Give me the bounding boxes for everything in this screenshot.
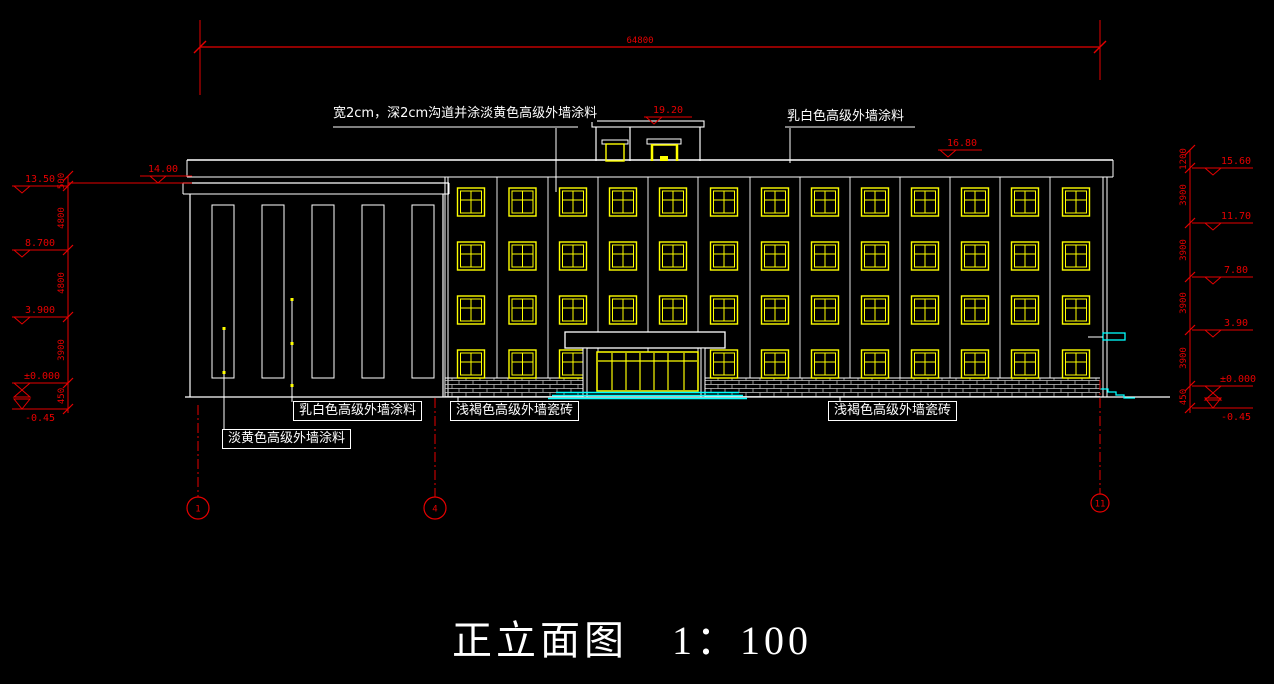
offwhite-paint-label-top: 乳白色高级外墙涂料 [787, 109, 904, 125]
elevation-marker-value: -0.45 [1221, 412, 1251, 423]
elevation-marker-value: 16.80 [947, 138, 977, 149]
offwhite-paint-label-bottom: 乳白色高级外墙涂料 [293, 401, 422, 421]
windows [458, 144, 1090, 378]
tile-label-left: 浅褐色高级外墙瓷砖 [450, 401, 579, 421]
elevation-marker-value: 15.60 [1221, 156, 1251, 167]
chain-dimension-value: 4800 [57, 207, 67, 229]
elevation-marker-value: ±0.000 [24, 371, 60, 382]
elevation-marker-value: 13.50 [25, 174, 55, 185]
chain-dimension-value: 3900 [1179, 347, 1189, 369]
chain-dimension-value: 3900 [1179, 184, 1189, 206]
tile-label-right: 浅褐色高级外墙瓷砖 [828, 401, 957, 421]
axis-number: 4 [432, 505, 437, 515]
chain-dimension-value: 4800 [57, 272, 67, 294]
entrance [565, 332, 725, 397]
elevation-marker-value: 3.900 [25, 305, 55, 316]
elevation-drawing: 6480019.2016.8014.0013.508.7003.900±0.00… [0, 0, 1274, 684]
elevation-marker-value: -0.45 [25, 413, 55, 424]
chain-dimension-value: 500 [57, 173, 67, 189]
overall-width-dimension: 64800 [626, 36, 653, 46]
elevation-marker-value: 8.700 [25, 238, 55, 249]
chain-dimension-value: 1200 [1179, 148, 1189, 170]
light-yellow-paint-label: 淡黄色高级外墙涂料 [222, 429, 351, 449]
drawing-title: 正立面图 1：100 [452, 608, 812, 666]
cad-elevation-view: 6480019.2016.8014.0013.508.7003.900±0.00… [0, 0, 1274, 684]
axis-number: 11 [1095, 500, 1106, 510]
elevation-marker-value: 3.90 [1224, 318, 1248, 329]
elevation-marker-value: 19.20 [653, 105, 683, 116]
chain-dimension-value: 450 [1179, 389, 1189, 405]
elevation-marker-value: 7.80 [1224, 265, 1248, 276]
elevation-marker-value: ±0.000 [1220, 374, 1256, 385]
chain-dimension-value: 450 [57, 388, 67, 404]
chain-dimension-value: 3900 [1179, 292, 1189, 314]
chain-dimension-value: 3900 [57, 339, 67, 361]
groove-note-label: 宽2cm，深2cm沟道并涂淡黄色高级外墙涂料 [333, 106, 597, 122]
elevation-marker-value: 11.70 [1221, 211, 1251, 222]
chain-dimension-value: 3900 [1179, 239, 1189, 261]
elevation-marker-value: 14.00 [148, 164, 178, 175]
axis-number: 1 [195, 505, 200, 515]
